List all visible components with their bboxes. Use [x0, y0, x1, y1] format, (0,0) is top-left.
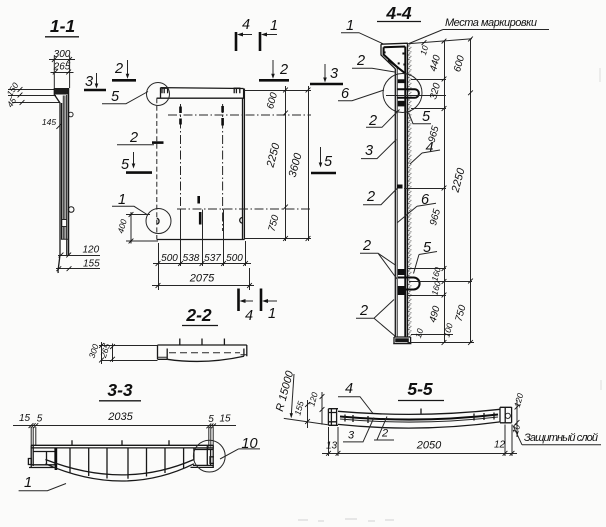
svg-text:2: 2	[362, 238, 371, 254]
svg-text:1: 1	[24, 475, 32, 491]
svg-text:6: 6	[341, 86, 350, 102]
svg-text:2035: 2035	[107, 411, 133, 423]
svg-text:10: 10	[241, 436, 257, 452]
svg-text:1: 1	[268, 306, 276, 322]
svg-text:538: 538	[183, 253, 200, 264]
svg-text:1: 1	[118, 192, 126, 208]
svg-text:2: 2	[129, 130, 138, 146]
svg-text:4-4: 4-4	[385, 3, 412, 23]
svg-text:15: 15	[219, 414, 231, 425]
svg-text:500: 500	[226, 253, 243, 264]
svg-text:Защитный слой: Защитный слой	[524, 432, 598, 444]
svg-text:2-2: 2-2	[185, 305, 212, 325]
svg-text:537: 537	[204, 253, 221, 264]
svg-text:12: 12	[494, 440, 506, 451]
svg-text:4: 4	[345, 381, 353, 397]
svg-text:2: 2	[366, 189, 375, 205]
svg-text:120: 120	[83, 245, 100, 256]
svg-text:300: 300	[54, 49, 71, 60]
svg-text:3: 3	[85, 74, 93, 90]
svg-text:3-3: 3-3	[107, 380, 133, 400]
svg-text:5: 5	[422, 109, 431, 125]
svg-text:5: 5	[121, 157, 130, 173]
svg-text:5: 5	[111, 89, 120, 105]
svg-text:155: 155	[83, 259, 100, 270]
svg-text:3: 3	[330, 66, 338, 82]
svg-text:Места маркировки: Места маркировки	[445, 17, 537, 29]
svg-text:1: 1	[346, 18, 354, 34]
svg-text:2: 2	[114, 61, 123, 77]
svg-text:15: 15	[19, 413, 31, 424]
svg-text:4: 4	[245, 308, 253, 324]
svg-text:5-5: 5-5	[407, 379, 433, 399]
svg-text:500: 500	[161, 253, 178, 264]
svg-text:13: 13	[326, 441, 338, 452]
svg-text:2: 2	[356, 53, 365, 69]
svg-text:265: 265	[53, 62, 71, 73]
svg-text:5: 5	[37, 414, 43, 425]
svg-text:145: 145	[42, 117, 56, 127]
svg-text:2: 2	[368, 113, 377, 129]
svg-text:2050: 2050	[416, 440, 442, 452]
svg-text:1: 1	[270, 18, 278, 34]
svg-text:5: 5	[324, 154, 333, 170]
svg-text:1-1: 1-1	[50, 16, 75, 36]
svg-text:3: 3	[348, 430, 355, 442]
svg-text:4: 4	[242, 17, 250, 33]
svg-text:2075: 2075	[189, 273, 215, 285]
svg-text:2: 2	[279, 62, 288, 78]
svg-text:5: 5	[208, 414, 214, 425]
svg-text:2: 2	[359, 303, 368, 319]
svg-text:3: 3	[365, 143, 373, 159]
